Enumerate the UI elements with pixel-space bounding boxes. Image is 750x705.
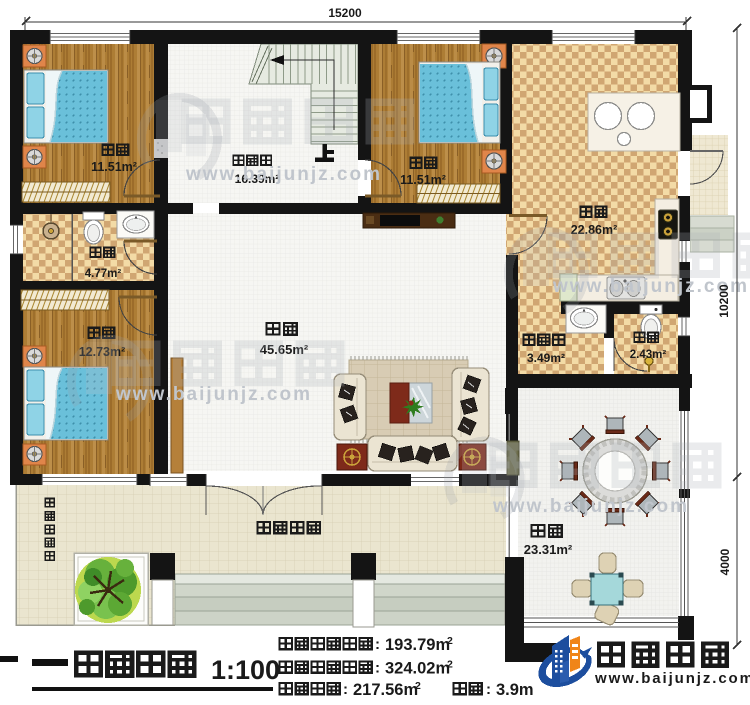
svg-text:www.baijunjz.com: www.baijunjz.com xyxy=(594,670,750,687)
svg-text:324.02m: 324.02m xyxy=(385,660,450,678)
svg-text:www.baijunjz.com: www.baijunjz.com xyxy=(492,496,689,517)
svg-text:www.baijunjz.com: www.baijunjz.com xyxy=(115,384,312,405)
svg-text::: : xyxy=(375,636,380,653)
svg-text:10200: 10200 xyxy=(717,284,731,318)
svg-text::: : xyxy=(375,660,380,677)
svg-text:1:100: 1:100 xyxy=(211,655,280,685)
svg-text::: : xyxy=(486,681,491,698)
svg-text::: : xyxy=(343,681,348,698)
svg-text:15200: 15200 xyxy=(328,6,362,20)
svg-text:11.51m²: 11.51m² xyxy=(400,173,446,187)
svg-text:www.baijunjz.com: www.baijunjz.com xyxy=(185,164,382,185)
svg-text:193.79m: 193.79m xyxy=(385,636,450,654)
svg-text:4000: 4000 xyxy=(718,548,732,575)
svg-text:4.77m²: 4.77m² xyxy=(85,268,122,280)
svg-text:2.43m²: 2.43m² xyxy=(630,349,667,361)
svg-text:2: 2 xyxy=(447,659,453,671)
svg-text:2: 2 xyxy=(415,680,421,692)
svg-text:3.49m²: 3.49m² xyxy=(527,351,565,365)
svg-text:217.56m: 217.56m xyxy=(353,681,418,699)
svg-text:3.9m: 3.9m xyxy=(496,681,534,699)
svg-text:11.51m²: 11.51m² xyxy=(91,160,137,174)
svg-text:2: 2 xyxy=(447,635,453,647)
svg-text:23.31m²: 23.31m² xyxy=(524,542,573,557)
